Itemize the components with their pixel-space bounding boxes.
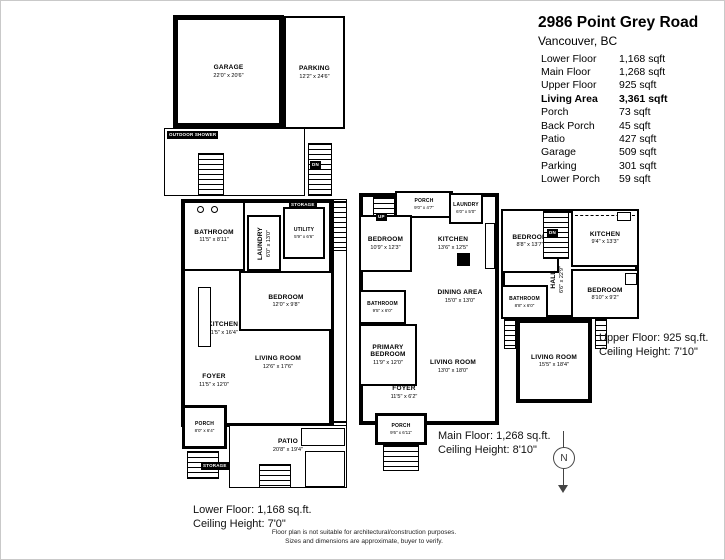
room-porch-lower: PORCH 8'0" x 6'4" <box>182 405 227 449</box>
room-foyer-lower: FOYER 11'5" x 12'0" <box>184 373 244 388</box>
sink-icon <box>197 206 204 213</box>
storage-label: STORAGE <box>289 201 317 209</box>
parking-area: PARKING 12'2" x 24'6" <box>284 16 345 129</box>
table-row: Porch73 sqft <box>541 106 711 119</box>
room-porch-main-top: PORCH 9'0" x 4'7" <box>395 191 453 218</box>
room-laundry-main: LAUNDRY 6'0" x 5'0" <box>449 193 483 224</box>
stairs <box>333 201 347 251</box>
sink-icon <box>211 206 218 213</box>
compass-north-icon: N <box>553 447 575 469</box>
stairs-direction-label: DN <box>547 229 558 237</box>
stairs <box>504 319 516 349</box>
room-living-room-lower: LIVING ROOM 12'6" x 17'6" <box>236 355 320 370</box>
stairs <box>259 464 291 488</box>
page-subtitle: Vancouver, BC <box>538 34 617 48</box>
table-row: Main Floor1,268 sqft <box>541 65 711 78</box>
room-primary-bedroom: PRIMARY BEDROOM 11'9" x 12'0" <box>359 324 417 386</box>
room-living-room-main: LIVING ROOM 13'0" x 18'0" <box>418 359 488 374</box>
outdoor-shower-label: OUTDOOR SHOWER <box>167 131 218 139</box>
table-row: Lower Porch59 sqft <box>541 173 711 186</box>
table-row: Garage509 sqft <box>541 146 711 159</box>
floor-plan-sheet: 2986 Point Grey Road Vancouver, BC Lower… <box>0 0 725 560</box>
room-dining-area: DINING AREA 15'0" x 13'0" <box>422 289 498 304</box>
storage-label: STORAGE <box>201 462 229 470</box>
room-kitchen-main: KITCHEN 13'6" x 12'5" <box>425 236 481 251</box>
room-foyer-main: FOYER 11'5" x 6'2" <box>377 385 431 400</box>
area-table: Lower Floor1,168 sqft Main Floor1,268 sq… <box>541 52 711 186</box>
lower-floor-caption: Lower Floor: 1,168 sq.ft. Ceiling Height… <box>193 503 312 531</box>
closet <box>625 273 637 285</box>
stairs <box>198 153 224 196</box>
table-row: Back Porch45 sqft <box>541 119 711 132</box>
kitchen-counter <box>485 223 495 269</box>
stove-icon <box>617 212 631 221</box>
upper-floor-caption: Upper Floor: 925 sq.ft. Ceiling Height: … <box>599 331 708 359</box>
stairs-direction-label: DN <box>310 161 321 169</box>
main-floor-caption: Main Floor: 1,268 sq.ft. Ceiling Height:… <box>438 429 551 457</box>
room-bathroom-main: BATHROOM 9'5" x 6'0" <box>359 290 406 324</box>
room-porch-main-bottom: PORCH 9'6" x 6'11" <box>375 413 427 445</box>
room-utility: UTILITY 5'9" x 6'6" <box>283 207 325 259</box>
room-bathroom-upper: BATHROOM 8'8" x 6'0" <box>501 285 548 319</box>
table-row: Patio427 sqft <box>541 132 711 145</box>
kitchen-island <box>198 287 211 347</box>
room-garage: GARAGE 22'0" x 20'6" <box>173 15 284 128</box>
stairs-direction-label: UP <box>376 213 387 221</box>
disclaimer: Floor plan is not suitable for architect… <box>214 529 514 546</box>
room-bedroom-main: BEDROOM 10'9" x 12'3" <box>359 215 412 272</box>
compass-arrow-icon <box>558 485 568 493</box>
page-title: 2986 Point Grey Road <box>538 14 698 32</box>
table-row: Parking301 sqft <box>541 159 711 172</box>
planter-box <box>301 428 345 446</box>
stairs <box>383 445 419 471</box>
table-row: Lower Floor1,168 sqft <box>541 52 711 65</box>
room-living-room-upper: LIVING ROOM 15'5" x 18'4" <box>516 319 592 403</box>
stairs <box>308 143 332 196</box>
room-laundry-lower: LAUNDRY 6'0" x 13'0" <box>247 215 281 271</box>
table-row-living-area: Living Area3,361 sqft <box>541 92 711 105</box>
table-row: Upper Floor925 sqft <box>541 79 711 92</box>
planter-box <box>305 451 345 487</box>
kitchen-island <box>457 253 470 266</box>
